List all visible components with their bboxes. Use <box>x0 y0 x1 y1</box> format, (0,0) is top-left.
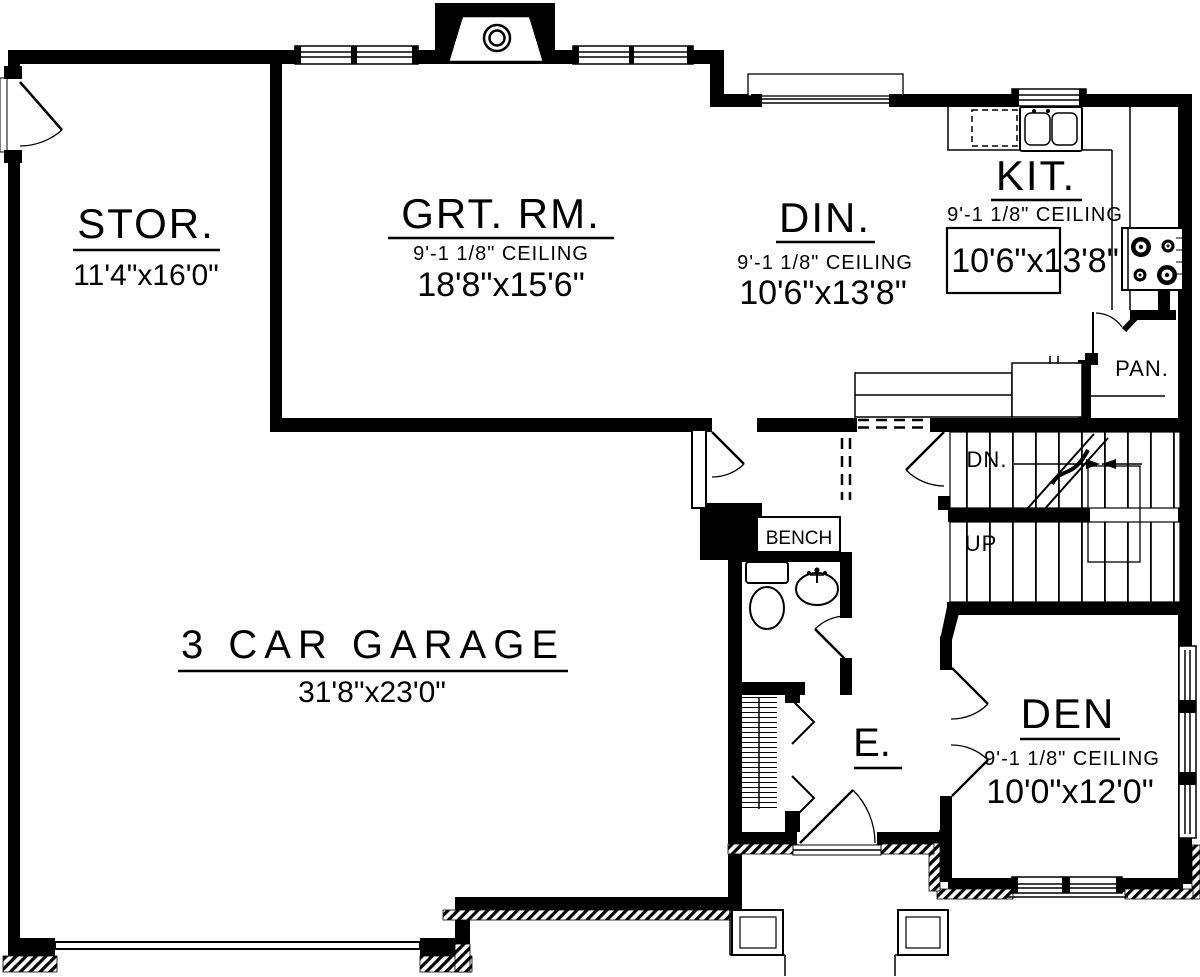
entry-name: E. <box>853 721 891 765</box>
porch-column-left <box>732 910 783 955</box>
fireplace <box>435 3 555 64</box>
great-room-name: GRT. RM. <box>401 190 601 237</box>
floor-plan: STOR. 11'4"x16'0" GRT. RM. 9'-1 1/8" CEI… <box>0 0 1200 977</box>
great-room-ceiling: 9'-1 1/8" CEILING <box>413 243 589 265</box>
toilet-bowl <box>750 587 784 629</box>
dining-dims: 10'6"x13'8" <box>739 274 907 312</box>
porch-column-right <box>898 910 948 955</box>
window-den-east <box>1179 646 1196 838</box>
toilet-tank <box>746 562 788 583</box>
garage-dims: 31'8"x23'0" <box>298 676 446 709</box>
pantry-name: PAN. <box>1115 356 1169 381</box>
bench-label: BENCH <box>766 528 833 549</box>
den-ceiling: 9'-1 1/8" CEILING <box>984 748 1160 770</box>
great-room-dims: 18'8"x15'6" <box>417 266 585 304</box>
dining-name: DIN. <box>779 194 871 241</box>
window-kitchen-sink <box>1012 89 1086 106</box>
stor-dims: 11'4"x16'0" <box>73 259 219 292</box>
kitchen-name: KIT. <box>996 152 1076 199</box>
kitchen-sink <box>1020 107 1082 151</box>
kitchen-ceiling: 9'-1 1/8" CEILING <box>947 204 1123 226</box>
range <box>1122 228 1183 290</box>
kitchen-dims: 10'6"x13'8" <box>951 242 1119 280</box>
den-name: DEN <box>1021 690 1116 737</box>
floor-plan-svg: STOR. 11'4"x16'0" GRT. RM. 9'-1 1/8" CEI… <box>0 0 1200 977</box>
dining-ceiling: 9'-1 1/8" CEILING <box>737 252 913 274</box>
window-great-room-left <box>295 46 418 64</box>
peninsula-cabinet-end <box>1012 363 1082 417</box>
window-great-room-right <box>573 46 693 64</box>
stor-name: STOR. <box>77 200 215 247</box>
garage-name: 3 CAR GARAGE <box>181 623 565 667</box>
stairs-up-label: UP <box>965 531 998 556</box>
den-dims: 10'0"x12'0" <box>986 773 1154 811</box>
stairs-down-label: DN. <box>967 447 1008 472</box>
